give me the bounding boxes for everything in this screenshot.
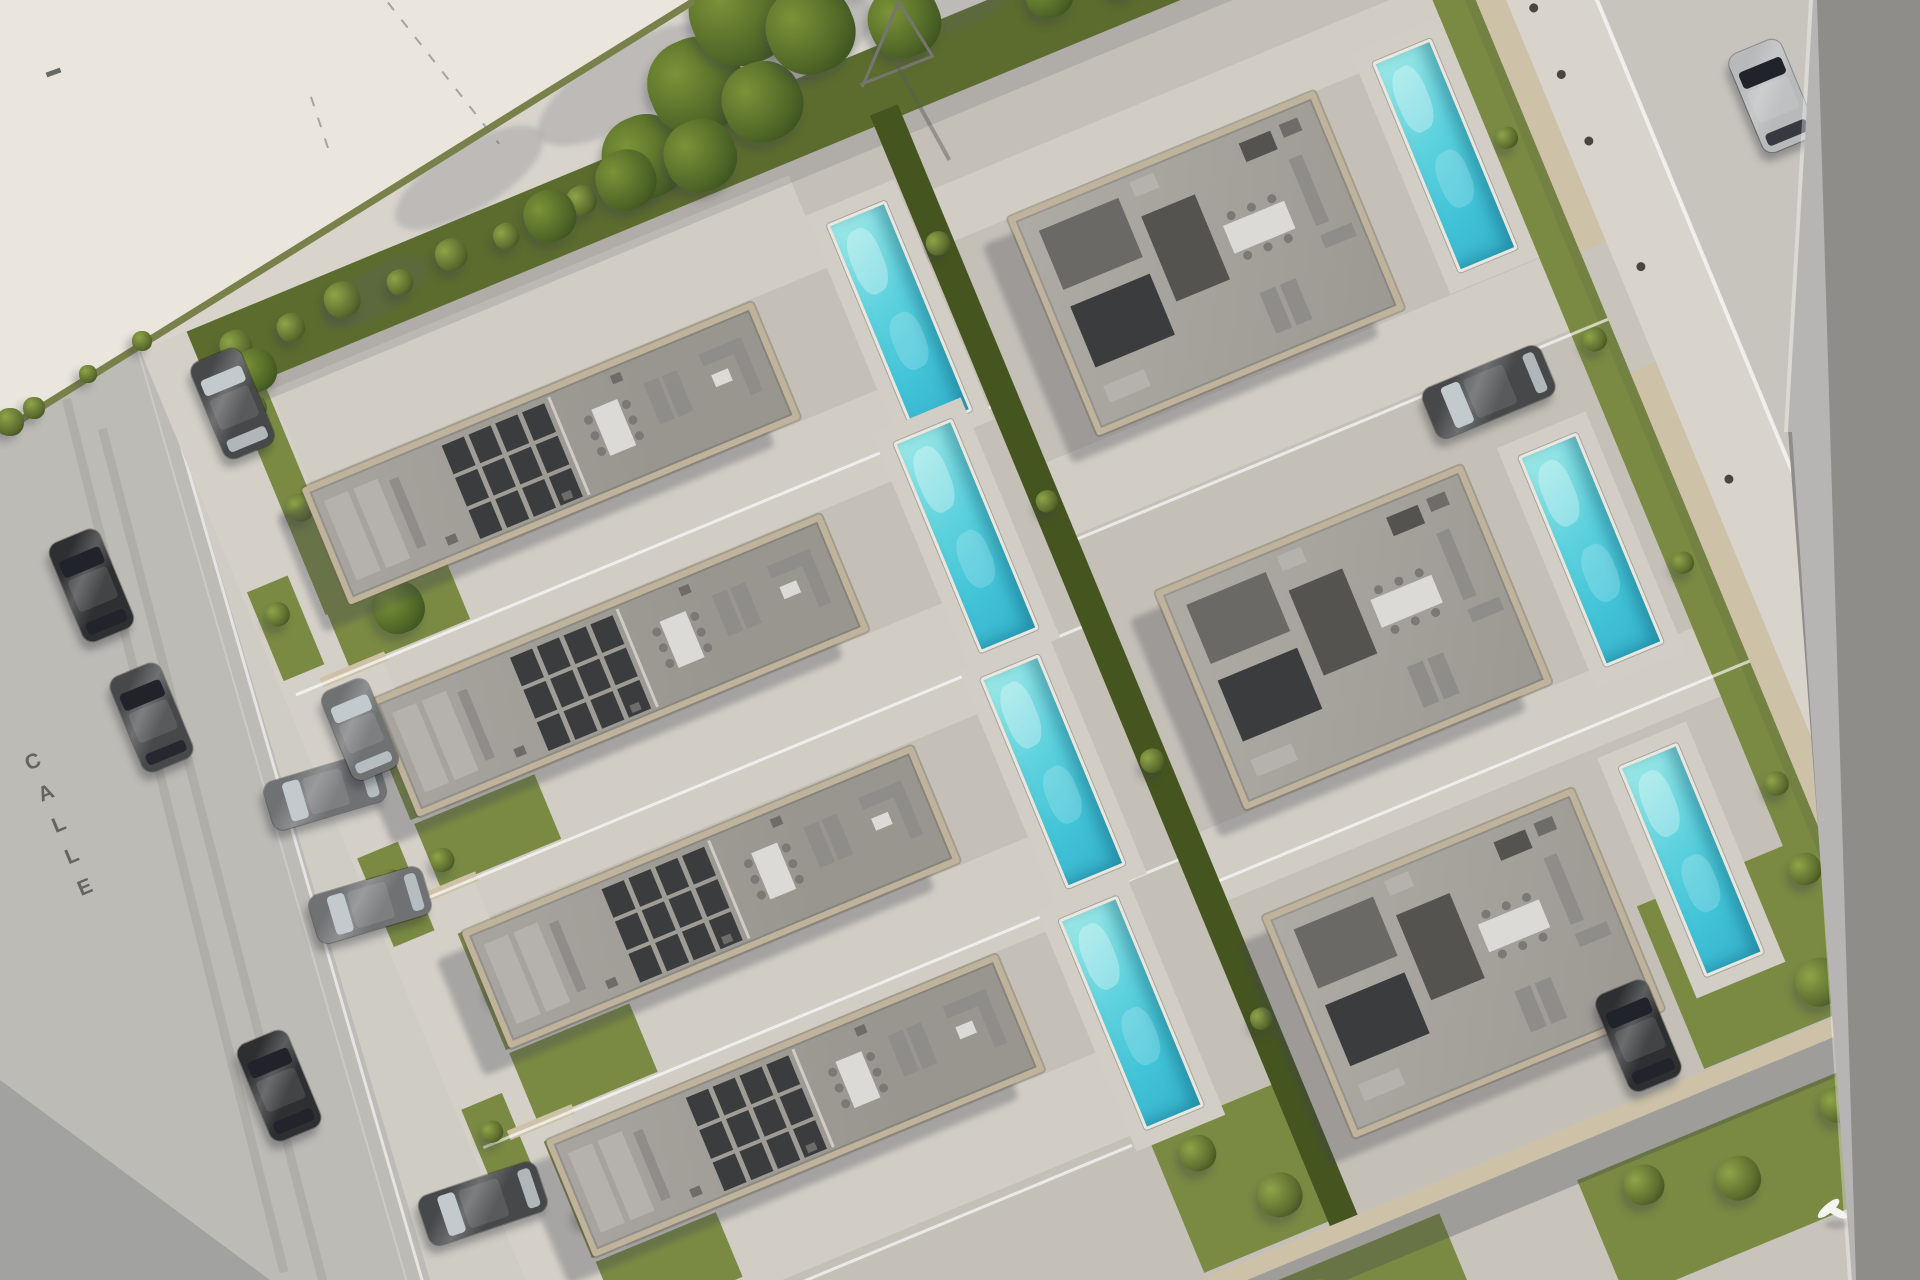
terrace-chair: [621, 399, 633, 411]
solar-panel: [686, 1089, 720, 1127]
roof-skylight: [1251, 743, 1299, 776]
roof-tableWhite: [871, 812, 893, 831]
roof-skylight: [1358, 1068, 1406, 1101]
roof-vent: [605, 977, 619, 990]
solar-panel: [455, 469, 489, 507]
roof-furn: [1575, 921, 1612, 947]
roof-tableWhite: [955, 1021, 977, 1040]
terrace-chair: [749, 873, 761, 885]
roof-vent: [854, 1024, 868, 1037]
terrace-table: [1370, 575, 1442, 628]
solar-panel: [615, 912, 649, 950]
roof-vent: [1533, 816, 1557, 837]
solar-panel: [564, 626, 598, 664]
roof-furn: [729, 337, 763, 396]
solar-panel: [699, 1121, 733, 1159]
water-highlight: [950, 524, 1000, 593]
terrace-chair: [664, 657, 676, 669]
solar-panel: [753, 1099, 787, 1137]
solar-panel: [602, 880, 636, 918]
roof-furn: [1320, 223, 1357, 249]
car-roof: [346, 881, 395, 929]
terrace-chair: [695, 626, 707, 638]
roof-panelLt: [1186, 572, 1290, 664]
terrace-chair: [743, 858, 755, 870]
solar-panel: [468, 501, 502, 539]
terrace-chair: [702, 642, 714, 654]
solar-panel: [713, 1078, 747, 1116]
terrace-chair: [1389, 623, 1401, 635]
solar-panel: [482, 458, 516, 496]
terrace-table: [1223, 201, 1295, 254]
solar-panel: [669, 890, 703, 928]
terrace-chair: [793, 873, 805, 885]
roof-tableWhite: [711, 368, 733, 387]
solar-panel: [739, 1067, 773, 1105]
solar-panel: [495, 490, 529, 528]
terrace-chair: [787, 858, 799, 870]
solar-panel: [655, 934, 689, 972]
roof-skylight: [1384, 871, 1414, 896]
solar-panel: [590, 691, 624, 729]
roof-vent: [678, 584, 692, 597]
bird: [1813, 1196, 1857, 1236]
terrace-chair: [833, 1082, 845, 1094]
roof-vent: [689, 1185, 703, 1198]
terrace-chair: [865, 1051, 877, 1063]
terrace-chair: [589, 430, 601, 442]
water-highlight: [1429, 144, 1479, 213]
water-highlight: [1037, 760, 1087, 829]
roof-furn: [973, 989, 1007, 1048]
solar-panel: [468, 425, 502, 463]
terrace-chair: [689, 611, 701, 623]
aerial-site-render: CALLE: [0, 0, 1920, 1280]
terrace-chair: [840, 1097, 852, 1109]
roof-panelMid: [1494, 829, 1533, 860]
roof-panelLt: [1039, 198, 1143, 290]
car-roof: [302, 767, 351, 815]
roof-skylight: [1129, 173, 1159, 198]
terrace-chair: [871, 1066, 883, 1078]
terrace-chair: [1497, 948, 1509, 960]
solar-panel: [713, 1153, 747, 1191]
bird-shadow: [1825, 1220, 1847, 1229]
roof-vent: [445, 533, 459, 546]
terrace-chair: [1282, 233, 1294, 245]
roof-vent: [1279, 117, 1303, 138]
roof-skylight: [1277, 547, 1307, 572]
terrace-chair: [878, 1082, 890, 1094]
water-highlight: [1675, 848, 1725, 917]
terrace-chair: [633, 430, 645, 442]
roof-vent: [610, 372, 624, 385]
solar-panel: [655, 858, 689, 896]
rear-window: [516, 1167, 540, 1209]
solar-panel: [604, 648, 638, 686]
roof-vent: [513, 745, 527, 758]
terrace-chair: [596, 445, 608, 457]
solar-panel: [537, 637, 571, 675]
solar-panel: [522, 403, 556, 441]
solar-panel: [535, 436, 569, 474]
solar-panel: [523, 681, 557, 719]
solar-panel: [628, 869, 662, 907]
solar-panel: [780, 1088, 814, 1126]
terrace-chair: [1430, 607, 1442, 619]
terrace-table: [1478, 899, 1550, 952]
roof-vent: [770, 815, 784, 828]
terrace-chair: [1242, 249, 1254, 261]
water-highlight: [1115, 1001, 1165, 1070]
solar-panel: [695, 879, 729, 917]
bush: [0, 408, 24, 436]
terrace-chair: [583, 414, 595, 426]
solar-panel: [766, 1131, 800, 1169]
solar-panel: [564, 702, 598, 740]
bush: [79, 365, 97, 383]
terrace-chair: [1537, 931, 1549, 943]
solar-panel: [739, 1142, 773, 1180]
solar-panel: [550, 670, 584, 708]
solar-panel: [726, 1110, 760, 1148]
roof-furn: [1543, 853, 1583, 925]
solar-panel: [642, 901, 676, 939]
roof-panel: [1218, 648, 1323, 742]
roof-panelMid: [1239, 131, 1278, 162]
solar-panel: [510, 649, 544, 687]
terrace-chair: [657, 642, 669, 654]
solar-panel: [537, 713, 571, 751]
roof-panel: [1070, 274, 1175, 368]
roof-furn: [889, 781, 923, 840]
terrace-chair: [627, 414, 639, 426]
terrace-chair: [1409, 615, 1421, 627]
terrace-chair: [651, 626, 663, 638]
roof-panelMid: [1386, 505, 1425, 536]
water-highlight: [1575, 538, 1625, 607]
roof-skylight: [1103, 369, 1151, 402]
terrace-chair: [1262, 241, 1274, 253]
roof-tableWhite: [780, 580, 802, 599]
solar-panel: [442, 437, 476, 475]
roof-furn: [1436, 529, 1476, 601]
solar-panel: [590, 615, 624, 653]
roof-furn: [797, 549, 831, 608]
roof-furn: [1289, 154, 1329, 226]
car-roof: [458, 1178, 511, 1229]
solar-panel: [682, 847, 716, 885]
roof-vent: [1426, 491, 1450, 512]
solar-panel: [577, 659, 611, 697]
solar-panel: [509, 447, 543, 485]
solar-panel: [628, 945, 662, 983]
solar-panel: [522, 479, 556, 517]
terrace-chair: [781, 842, 793, 854]
bush: [132, 331, 152, 351]
roof-panelLt: [1294, 897, 1398, 989]
water-highlight: [883, 306, 933, 375]
roof-panel: [1325, 972, 1430, 1066]
solar-panel: [682, 923, 716, 961]
roof-furn: [1467, 597, 1504, 623]
rear-window: [403, 872, 425, 912]
terrace-chair: [827, 1067, 839, 1079]
solar-panel: [495, 414, 529, 452]
terrace-chair: [755, 889, 767, 901]
bush: [23, 397, 45, 419]
terrace-chair: [1517, 940, 1529, 952]
